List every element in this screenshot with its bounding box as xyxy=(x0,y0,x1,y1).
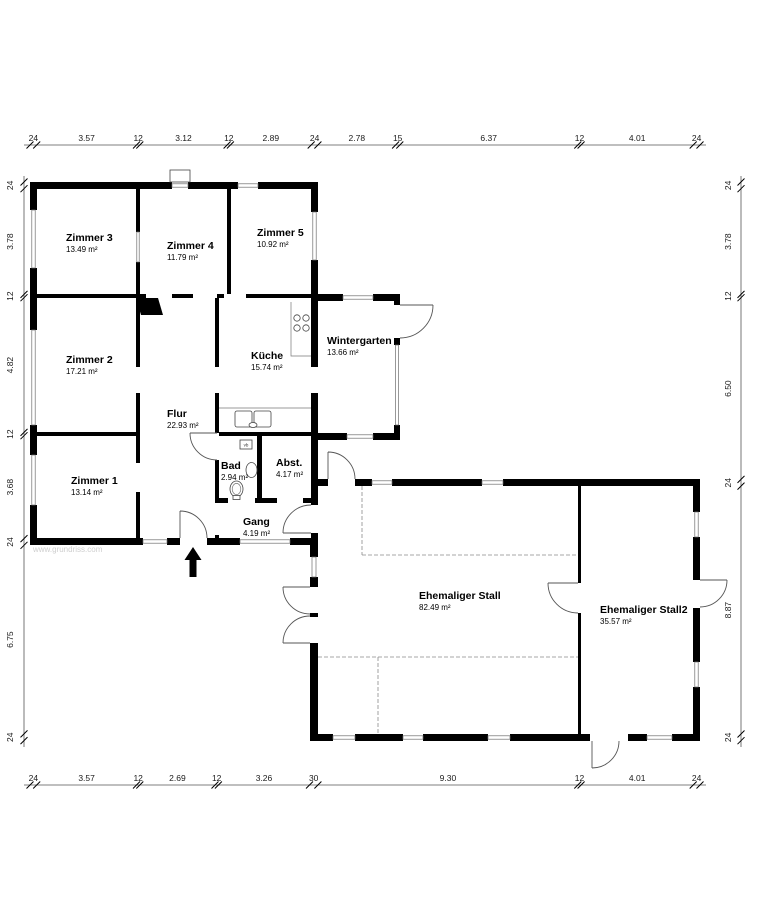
window-wintergarten-east xyxy=(396,345,399,425)
room-area-zimmer4: 11.79 m² xyxy=(167,253,198,262)
dimension-labels-top: 24 3.57 12 3.12 12 2.89 24 2.78 15 6.37 … xyxy=(29,133,702,143)
window-stall2-bottom xyxy=(647,736,672,739)
interior-wall-h2a xyxy=(37,432,140,436)
dim-left-2: 12 xyxy=(5,291,15,301)
dim-left-7: 6.75 xyxy=(5,631,15,648)
stall-west-door1-swing xyxy=(283,587,310,614)
dim-bottom-3: 2.69 xyxy=(169,773,186,783)
wintergarten-door-swing xyxy=(400,305,433,338)
dim-top-12: 24 xyxy=(692,133,702,143)
dim-right-4: 24 xyxy=(723,478,733,488)
room-area-abst: 4.17 m² xyxy=(276,470,303,479)
interior-wall-vB xyxy=(227,189,231,294)
dim-left-0: 24 xyxy=(5,180,15,190)
window-stall-top-2 xyxy=(482,481,503,484)
dim-top-11: 4.01 xyxy=(629,133,646,143)
stove-icon xyxy=(294,315,309,331)
dim-left-3: 4.82 xyxy=(5,357,15,374)
room-name-gang: Gang xyxy=(243,516,270,528)
room-name-zimmer4: Zimmer 4 xyxy=(167,240,214,252)
room-area-wintergarten: 13.66 m² xyxy=(327,348,359,357)
dim-bottom-9: 4.01 xyxy=(629,773,646,783)
dim-top-1: 3.57 xyxy=(78,133,95,143)
door-openings xyxy=(136,232,700,741)
window-top-small xyxy=(172,184,188,187)
room-area-flur: 22.93 m² xyxy=(167,421,199,430)
north-arrow-icon xyxy=(185,547,202,577)
dim-bottom-5: 3.26 xyxy=(256,773,273,783)
stall-west-door2-swing xyxy=(283,616,310,643)
dim-bottom-8: 12 xyxy=(575,773,585,783)
room-area-gang: 4.19 m² xyxy=(243,529,270,538)
room-area-stall2: 35.57 m² xyxy=(600,617,632,626)
window-stall2-east-1 xyxy=(695,512,698,537)
bad-door-swing xyxy=(190,433,217,460)
window-zimmer5-top xyxy=(238,184,258,187)
dim-top-2: 12 xyxy=(133,133,143,143)
dim-bottom-6: 30 xyxy=(309,773,319,783)
room-name-wintergarten: Wintergarten xyxy=(327,335,392,347)
dim-right-6: 24 xyxy=(723,732,733,742)
kitchen-sink-icon xyxy=(235,411,271,428)
room-name-stall: Ehemaliger Stall xyxy=(419,590,501,602)
room-name-abst: Abst. xyxy=(276,457,302,469)
window-zimmer3-left xyxy=(32,210,35,268)
interior-wall-h1 xyxy=(37,294,311,298)
room-area-kueche: 15.74 m² xyxy=(251,363,283,372)
dim-top-3: 3.12 xyxy=(175,133,192,143)
chimney-icon xyxy=(170,170,190,182)
window-flur-bottom xyxy=(143,540,167,543)
dim-top-9: 6.37 xyxy=(480,133,497,143)
dim-right-1: 3.78 xyxy=(723,233,733,250)
room-name-zimmer1: Zimmer 1 xyxy=(71,475,118,487)
chimney-block xyxy=(136,298,163,315)
entrance-door-swing xyxy=(180,511,207,538)
room-name-kueche: Küche xyxy=(251,350,283,362)
room-name-zimmer3: Zimmer 3 xyxy=(66,232,113,244)
window-stall-bottom-3 xyxy=(488,736,510,739)
room-name-zimmer2: Zimmer 2 xyxy=(66,354,113,366)
dim-left-4: 12 xyxy=(5,429,15,439)
dim-bottom-1: 3.57 xyxy=(78,773,95,783)
dim-bottom-4: 12 xyxy=(212,773,222,783)
dimension-labels-bottom: 24 3.57 12 2.69 12 3.26 30 9.30 12 4.01 … xyxy=(29,773,702,783)
dim-left-8: 24 xyxy=(5,732,15,742)
dim-bottom-10: 24 xyxy=(692,773,702,783)
dim-left-6: 24 xyxy=(5,537,15,547)
stall-top-door-swing xyxy=(328,452,355,479)
window-stall-bottom-2 xyxy=(403,736,423,739)
stall-divider-door-swing xyxy=(548,583,578,613)
gang-east-door-swing xyxy=(283,505,311,533)
floor-plan-canvas: 24 3.57 12 3.12 12 2.89 24 2.78 15 6.37 … xyxy=(0,0,758,900)
room-area-zimmer1: 13.14 m² xyxy=(71,488,103,497)
dim-left-1: 3.78 xyxy=(5,233,15,250)
vent-box: vb xyxy=(240,440,252,449)
room-area-stall: 82.49 m² xyxy=(419,603,451,612)
walls xyxy=(30,182,700,741)
room-area-zimmer3: 13.49 m² xyxy=(66,245,98,254)
dim-top-7: 2.78 xyxy=(349,133,366,143)
window-gang-bottom xyxy=(240,540,290,543)
window-zimmer2-left xyxy=(32,330,35,425)
vent-label: vb xyxy=(244,443,249,448)
dimension-labels-left: 24 3.78 12 4.82 12 3.68 24 6.75 24 xyxy=(5,180,15,742)
room-name-zimmer5: Zimmer 5 xyxy=(257,227,304,239)
room-name-bad: Bad xyxy=(221,460,241,472)
dim-bottom-0: 24 xyxy=(29,773,39,783)
window-wintergarten-top xyxy=(343,296,373,299)
interior-wall-h2b xyxy=(215,432,311,436)
window-stall-top-1 xyxy=(372,481,392,484)
watermark: www.grundriss.com xyxy=(32,545,103,554)
dim-right-0: 24 xyxy=(723,180,733,190)
dim-top-6: 24 xyxy=(310,133,320,143)
dimension-lines xyxy=(21,142,745,789)
room-name-stall2: Ehemaliger Stall2 xyxy=(600,604,688,616)
dim-top-4: 12 xyxy=(224,133,234,143)
dim-right-5: 8.87 xyxy=(723,602,733,619)
room-area-zimmer2: 17.21 m² xyxy=(66,367,98,376)
window-stall-bottom-1 xyxy=(333,736,355,739)
dim-bottom-7: 9.30 xyxy=(440,773,457,783)
dim-right-3: 6.50 xyxy=(723,380,733,397)
window-zimmer5-east xyxy=(313,212,316,260)
room-area-bad: 2.94 m² xyxy=(221,473,248,482)
dim-bottom-2: 12 xyxy=(133,773,143,783)
room-area-zimmer5: 10.92 m² xyxy=(257,240,289,249)
dimension-labels-right: 24 3.78 12 6.50 24 8.87 24 xyxy=(723,180,733,742)
bad-abst-wall xyxy=(257,436,262,498)
dim-top-5: 2.89 xyxy=(263,133,280,143)
stall2-bottom-door-swing xyxy=(592,741,619,768)
windows xyxy=(30,182,700,741)
room-labels: Zimmer 3 13.49 m² Zimmer 4 11.79 m² Zimm… xyxy=(66,227,688,626)
dim-left-5: 3.68 xyxy=(5,479,15,496)
dim-top-8: 15 xyxy=(393,133,403,143)
dim-top-10: 12 xyxy=(575,133,585,143)
window-wintergarten-bottom xyxy=(347,435,373,438)
window-stall-west xyxy=(312,557,316,577)
dim-top-0: 24 xyxy=(29,133,39,143)
toilet-icon xyxy=(230,481,243,500)
room-name-flur: Flur xyxy=(167,408,187,420)
window-zimmer1-left xyxy=(32,455,35,505)
dim-right-2: 12 xyxy=(723,291,733,301)
window-stall2-east-2 xyxy=(695,662,698,687)
